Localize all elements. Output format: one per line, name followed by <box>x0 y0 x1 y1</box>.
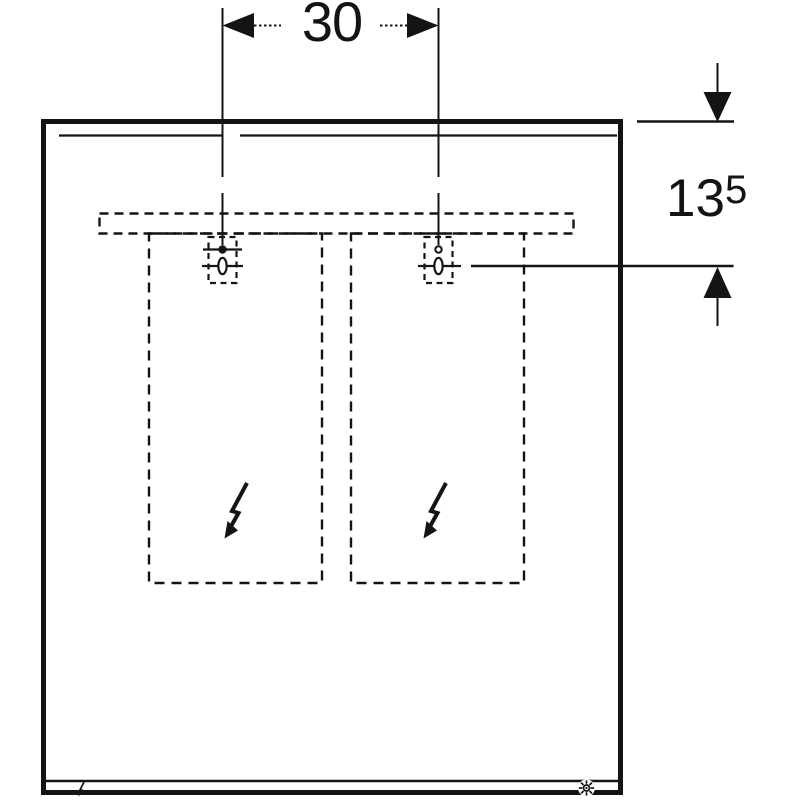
flash-icon-right <box>424 483 447 539</box>
mounting-hole <box>435 246 441 252</box>
height-dimension-main: 13 <box>666 169 725 228</box>
arrow-down-icon <box>704 92 732 122</box>
mounting-rail-dashed <box>100 214 574 234</box>
keyhole-slot <box>218 258 226 274</box>
right-compartment-dashed <box>351 234 524 584</box>
cabinet-outline <box>44 122 621 793</box>
light-sun-icon <box>578 780 595 797</box>
width-dimension-label: 30 <box>296 0 368 50</box>
arrow-right-icon <box>407 13 439 38</box>
keyhole-slot <box>434 258 442 274</box>
flash-icon-left <box>225 483 248 539</box>
mounting-dot <box>218 245 226 253</box>
technical-drawing: 30 135 <box>0 0 800 800</box>
cabinet-outer-edge <box>44 122 621 793</box>
height-dimension-label: 135 <box>666 170 747 225</box>
arrow-up-icon <box>704 267 732 298</box>
height-dimension-superscript: 5 <box>725 168 747 212</box>
arrow-left-icon <box>223 13 255 38</box>
drawing-canvas <box>0 0 800 800</box>
